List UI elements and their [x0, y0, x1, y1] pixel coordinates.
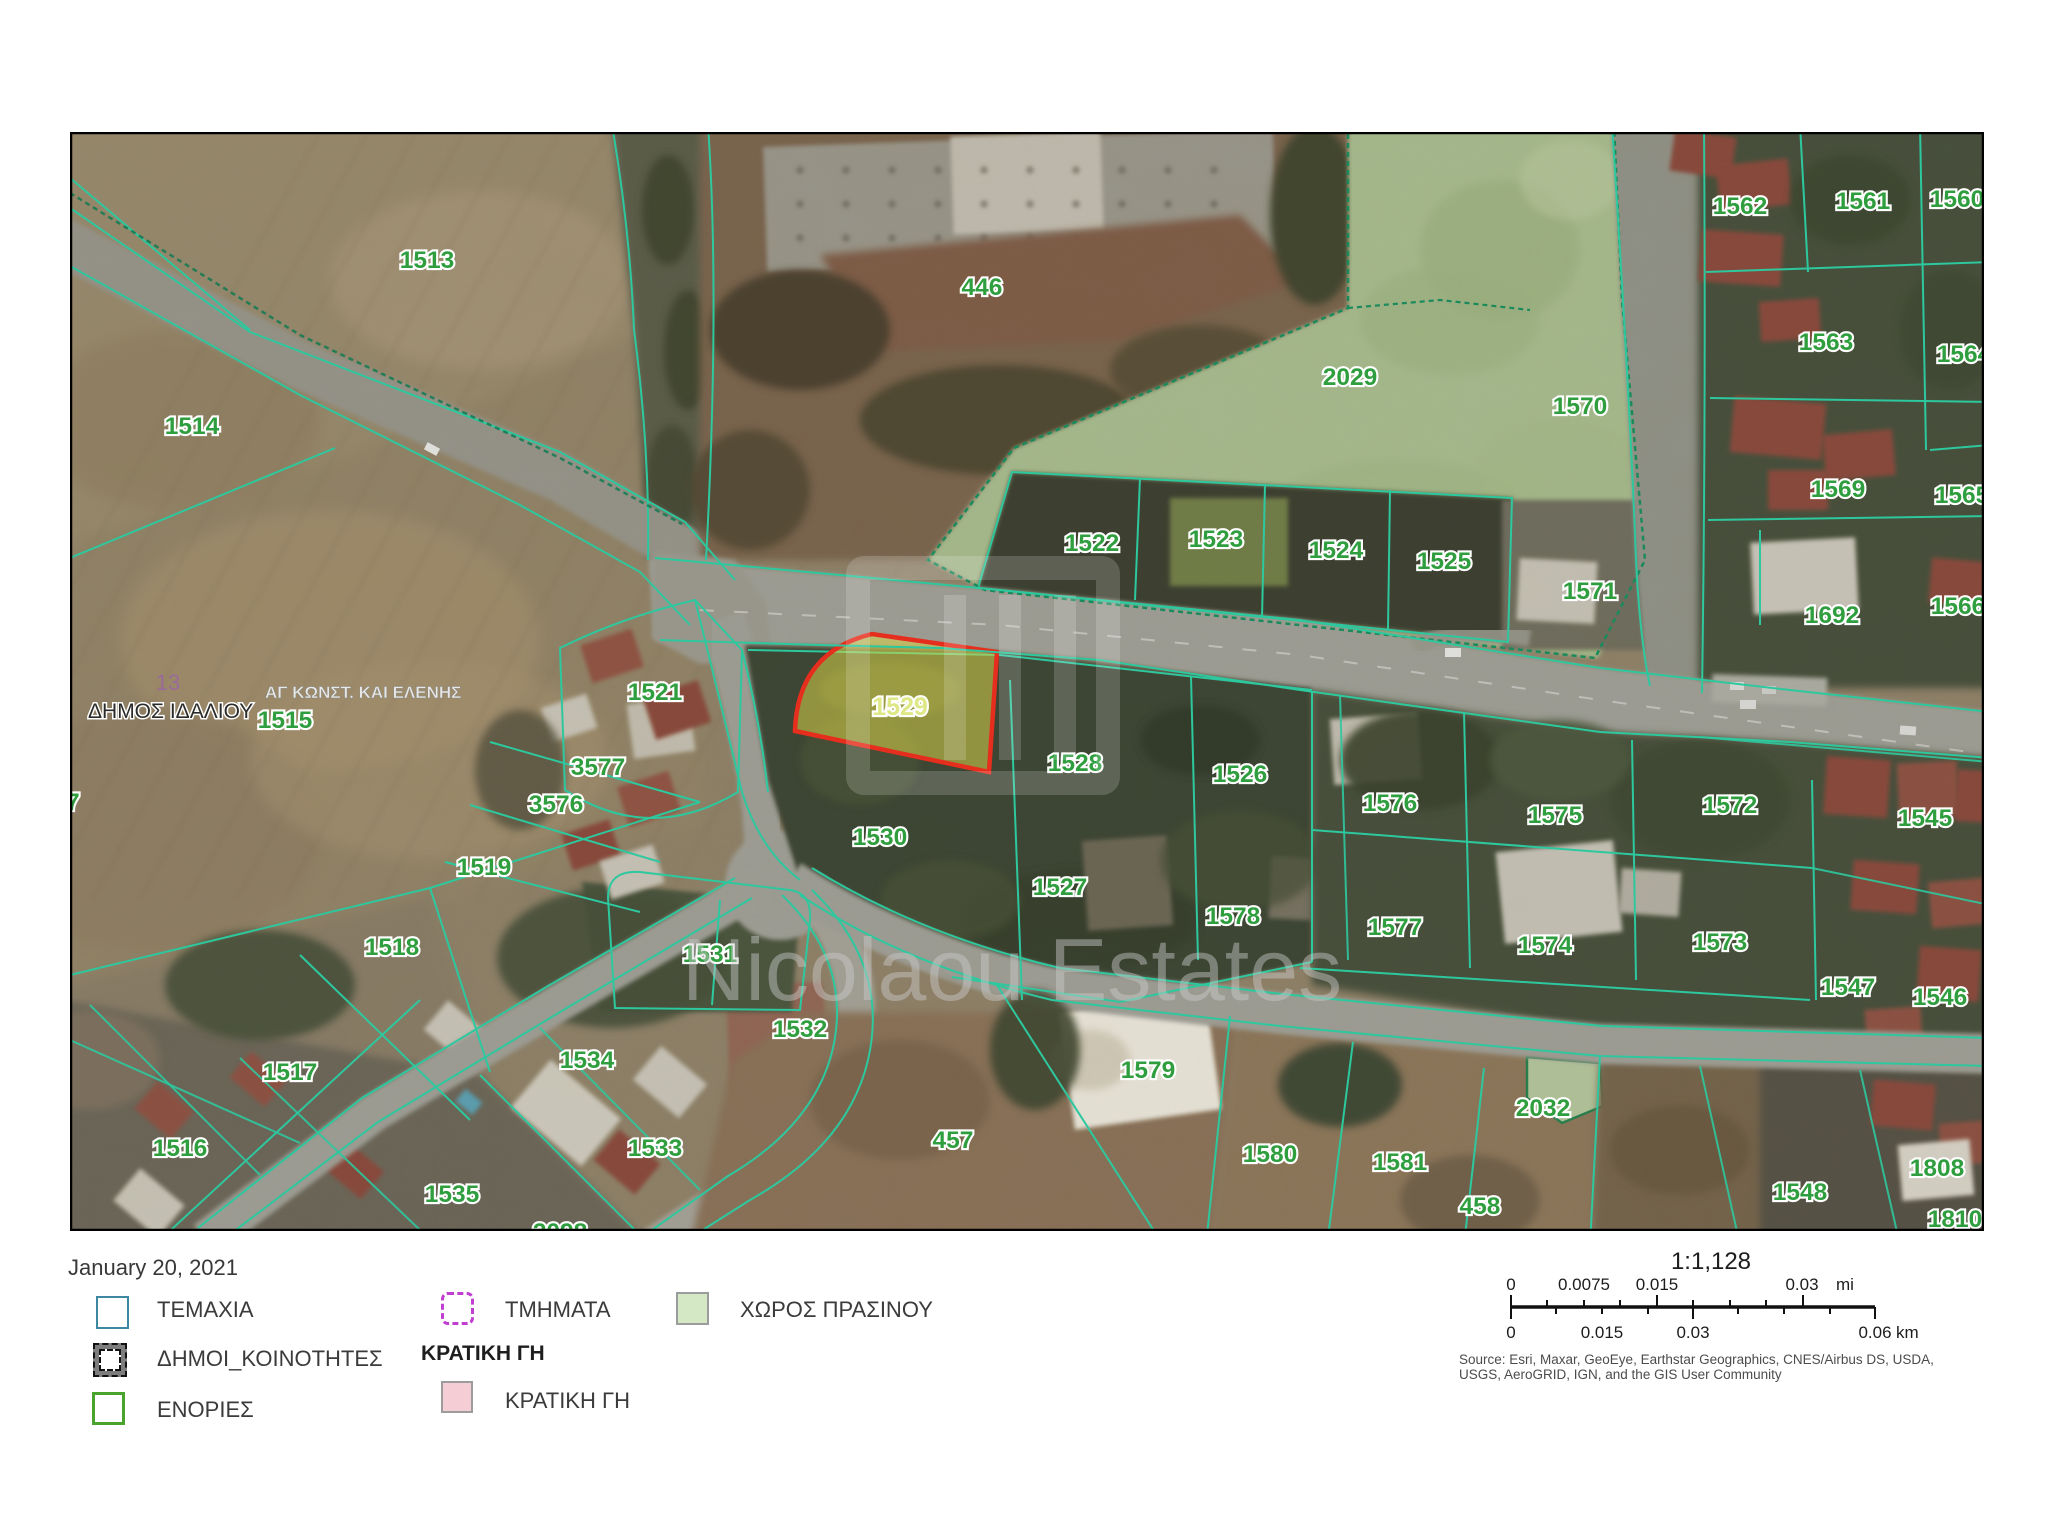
svg-text:mi: mi: [1836, 1275, 1854, 1294]
svg-text:0.06: 0.06: [1858, 1323, 1891, 1342]
svg-text:0.015: 0.015: [1581, 1323, 1624, 1342]
svg-text:0: 0: [1506, 1275, 1515, 1294]
svg-text:0.03: 0.03: [1785, 1275, 1818, 1294]
svg-text:0.015: 0.015: [1636, 1275, 1679, 1294]
svg-text:1:1,128: 1:1,128: [1671, 1248, 1751, 1275]
svg-text:0.03: 0.03: [1676, 1323, 1709, 1342]
svg-text:Nicolaou Estates: Nicolaou Estates: [682, 920, 1342, 1019]
svg-text:km: km: [1896, 1323, 1919, 1342]
svg-text:0.0075: 0.0075: [1558, 1275, 1610, 1294]
svg-text:0: 0: [1506, 1323, 1515, 1342]
